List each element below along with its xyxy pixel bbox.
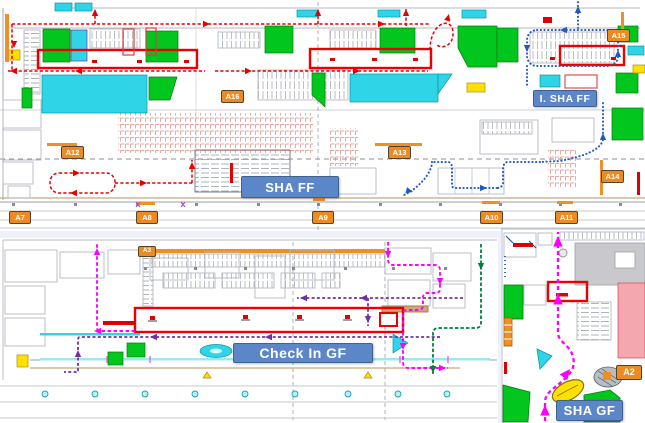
gate-label-a15-text: A15	[612, 32, 626, 40]
gate-label-a15: A15	[607, 29, 630, 42]
gate-label-a10: A10	[480, 211, 503, 224]
banner-sha-gf: SHA GF	[556, 400, 623, 421]
banner-check-in-gf: Check In GF	[233, 343, 373, 363]
banner-sha-ff: SHA FF	[241, 176, 339, 198]
gate-label-a8-text: A8	[142, 214, 152, 222]
gate-label-a10-text: A10	[485, 214, 499, 222]
banner-i-sha-ff-label: I. SHA FF	[540, 93, 591, 105]
gate-label-a7-text: A7	[15, 214, 25, 222]
gate-label-a9: A9	[312, 211, 334, 224]
gate-label-a12: A12	[61, 146, 84, 159]
gate-label-a8: A8	[136, 211, 158, 224]
gate-label-a2: A2	[616, 365, 642, 380]
gate-label-a14: A14	[601, 170, 624, 183]
floor-plan-canvas: SHA FF I. SHA FF Check In GF SHA GF A15 …	[0, 0, 645, 423]
banner-sha-ff-label: SHA FF	[265, 180, 314, 195]
gate-label-a13-text: A13	[393, 149, 407, 157]
banner-check-in-gf-label: Check In GF	[259, 345, 346, 361]
gate-label-a16-text: A16	[226, 93, 240, 101]
banner-i-sha-ff: I. SHA FF	[533, 90, 597, 107]
gate-label-a11-text: A11	[560, 214, 573, 222]
gate-label-a16: A16	[221, 90, 244, 103]
gate-label-a7: A7	[9, 211, 31, 224]
gate-label-a13: A13	[388, 146, 411, 159]
gate-label-a2-text: A2	[623, 368, 635, 377]
gate-label-a3-text: A3	[143, 248, 151, 255]
gate-label-a3: A3	[138, 246, 156, 257]
banner-sha-gf-label: SHA GF	[564, 403, 616, 418]
gate-label-a12-text: A12	[66, 149, 80, 157]
gate-label-a9-text: A9	[318, 214, 328, 222]
gate-label-a14-text: A14	[606, 173, 620, 181]
gate-label-a11: A11	[555, 211, 578, 224]
